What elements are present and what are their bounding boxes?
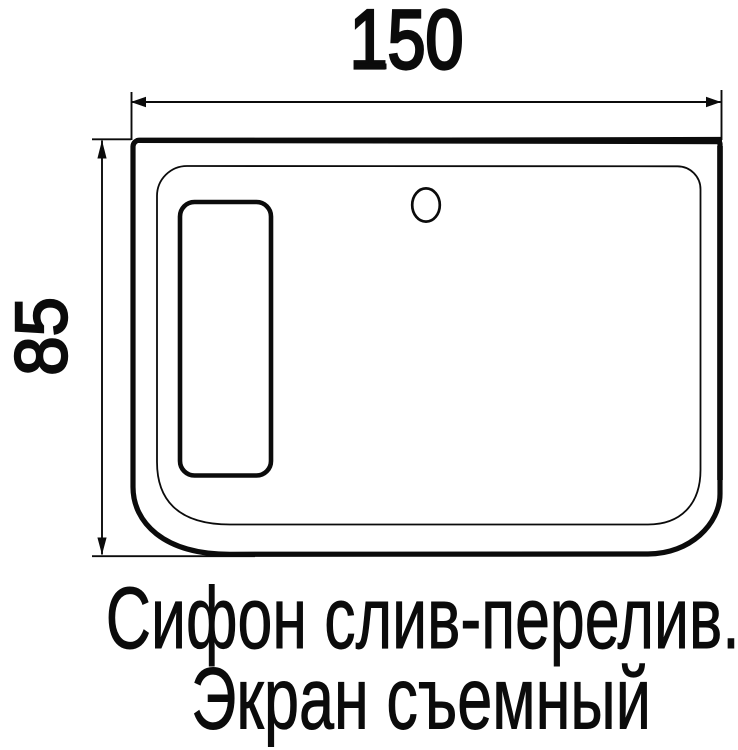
svg-text:150: 150 xyxy=(350,0,464,87)
svg-text:85: 85 xyxy=(1,297,82,376)
svg-text:Экран съемный: Экран съемный xyxy=(191,651,651,748)
